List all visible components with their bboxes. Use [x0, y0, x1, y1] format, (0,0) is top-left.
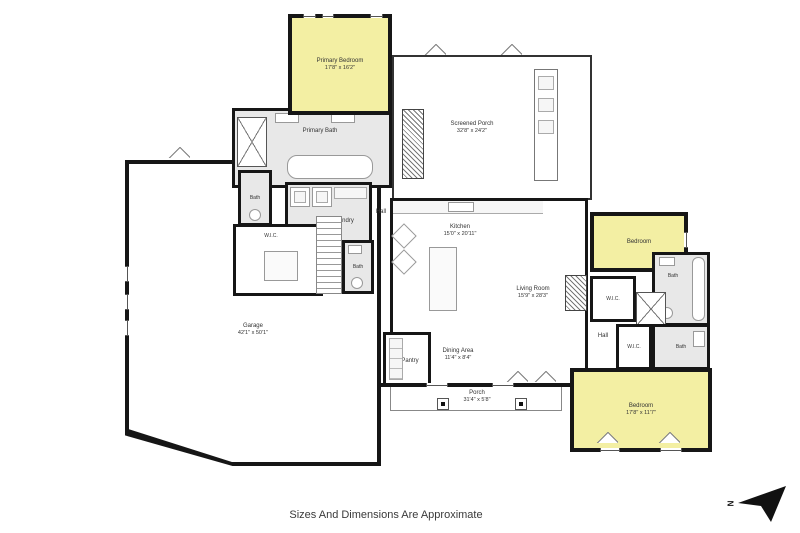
bath-label: Bath: [661, 273, 685, 280]
wic-primary-label: W.I.C.: [256, 233, 286, 240]
shower: [237, 117, 267, 167]
washer: [290, 187, 310, 207]
door-mark: [500, 44, 522, 55]
door-mark: [506, 371, 528, 382]
laundry-counter: [334, 187, 367, 199]
dryer: [312, 187, 332, 207]
window: [322, 14, 334, 18]
wic-label: W.I.C.: [627, 344, 641, 351]
closet-island: [264, 251, 298, 281]
garage-label: Garage 42'1" x 50'1": [212, 322, 294, 338]
bath-label: Bath: [250, 195, 260, 202]
room-porch: Porch 31'4" x 5'8": [390, 387, 562, 411]
stairs: [316, 216, 342, 294]
bathtub: [692, 257, 705, 321]
window: [600, 448, 620, 452]
corner-cabinet: [391, 223, 416, 248]
bath-label: Bath: [676, 344, 686, 351]
room-primary-bedroom: Primary Bedroom 17'8" x 16'2": [288, 14, 392, 115]
room-bath-stairs: Bath: [342, 240, 374, 294]
porch-column: [515, 398, 527, 410]
window: [684, 232, 688, 248]
chimney-hatch: [402, 109, 424, 179]
primary-bedroom-label: Primary Bedroom 17'8" x 16'2": [317, 57, 364, 73]
kitchen-label: Kitchen 15'0" x 20'11": [415, 223, 505, 239]
window: [303, 14, 316, 18]
living-room-label: Living Room 15'9" x 28'3": [488, 285, 578, 301]
bedroom-lower-label: Bedroom 17'8" x 11'7": [626, 402, 656, 418]
door-mark: [534, 371, 556, 382]
outdoor-kitchen-counter: [534, 69, 558, 181]
hall-right-label: Hall: [590, 332, 616, 340]
room-wic-right-lower: W.I.C.: [616, 324, 652, 370]
toilet: [351, 277, 363, 289]
window: [125, 320, 129, 336]
pantry-shelves: [389, 338, 403, 380]
door-mark: [596, 432, 618, 443]
window: [660, 448, 682, 452]
hall-center-label: Hall: [368, 208, 394, 216]
room-bedroom-lower: Bedroom 17'8" x 11'7": [570, 368, 712, 452]
sink: [693, 331, 705, 347]
room-wic-right-upper: W.I.C.: [590, 276, 636, 322]
kitchen-counter: [393, 201, 543, 214]
porch-column: [437, 398, 449, 410]
window: [125, 266, 129, 282]
closet-hatch: [636, 292, 666, 326]
door-mark: [168, 147, 190, 158]
room-wic-primary: W.I.C.: [233, 224, 323, 296]
toilet: [249, 209, 261, 221]
bathtub: [287, 155, 373, 179]
window: [370, 14, 383, 18]
wic-label: W.I.C.: [606, 296, 620, 303]
sink: [659, 257, 675, 266]
room-bath-right-lower: Bath: [652, 324, 710, 370]
bath-label: Bath: [353, 264, 363, 271]
room-bath-hall: Bath: [238, 170, 272, 226]
door-mark: [424, 44, 446, 55]
dining-area-label: Dining Area 11'4" x 8'4": [418, 347, 498, 363]
window: [125, 294, 129, 310]
compass: N: [728, 482, 792, 528]
kitchen-island: [429, 247, 457, 311]
sink: [348, 245, 362, 254]
porch-label: Porch 31'4" x 5'8": [437, 389, 517, 405]
door-mark: [658, 432, 680, 443]
corner-cabinet: [391, 249, 416, 274]
screened-porch-label: Screened Porch 32'8" x 24'2": [450, 120, 493, 136]
primary-bath-label: Primary Bath: [285, 127, 355, 135]
north-arrow-icon: [728, 482, 792, 528]
compass-north-letter: N: [726, 501, 735, 507]
bedroom-right-label: Bedroom: [627, 238, 651, 246]
footer-note: Sizes And Dimensions Are Approximate: [0, 509, 800, 521]
room-screened-porch: Screened Porch 32'8" x 24'2": [392, 55, 592, 200]
floor-plan: Garage 42'1" x 50'1" Screened Porch 32'8…: [0, 0, 800, 533]
